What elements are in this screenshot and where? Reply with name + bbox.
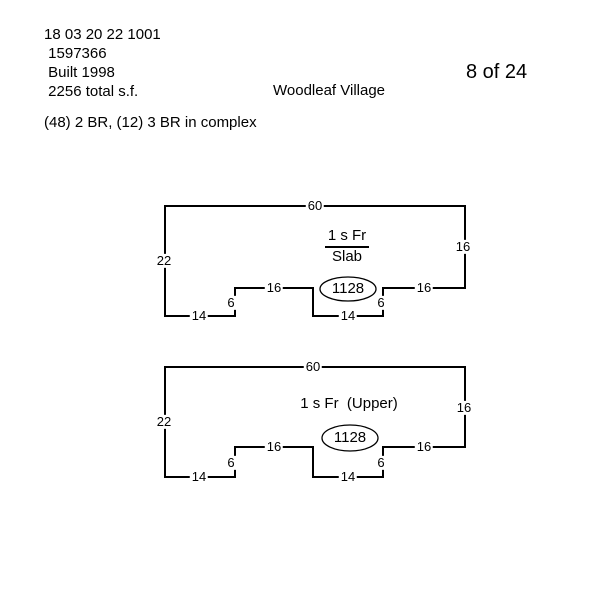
dim-shelf-right: 16	[415, 281, 433, 295]
area-value-slab: 1128	[332, 281, 364, 298]
building-outline-slab	[165, 206, 465, 316]
dim-shelf-left: 16	[265, 281, 283, 295]
sketch-page: 18 03 20 22 1001 1597366 Built 1998 2256…	[0, 0, 600, 600]
dim-step-left: 6	[225, 456, 236, 470]
dim-step-left: 6	[225, 296, 236, 310]
dim-bottom-middle: 14	[339, 309, 357, 323]
dim-top: 60	[306, 199, 324, 213]
dim-step-right: 6	[375, 456, 386, 470]
story-label-slab: 1 s Fr	[328, 228, 366, 245]
dim-right: 16	[455, 401, 473, 415]
sketch-canvas	[0, 0, 600, 600]
dim-bottom-left: 14	[190, 470, 208, 484]
dim-bottom-left: 14	[190, 309, 208, 323]
dim-left: 22	[155, 415, 173, 429]
area-value-upper: 1128	[334, 430, 366, 447]
dim-top: 60	[304, 360, 322, 374]
foundation-label: Slab	[332, 249, 362, 266]
dim-bottom-middle: 14	[339, 470, 357, 484]
building-outline-upper	[165, 367, 465, 477]
dim-shelf-right: 16	[415, 440, 433, 454]
dim-right: 16	[454, 240, 472, 254]
story-label-upper: 1 s Fr (Upper)	[300, 396, 398, 413]
dim-left: 22	[155, 254, 173, 268]
dim-step-right: 6	[375, 296, 386, 310]
dim-shelf-left: 16	[265, 440, 283, 454]
